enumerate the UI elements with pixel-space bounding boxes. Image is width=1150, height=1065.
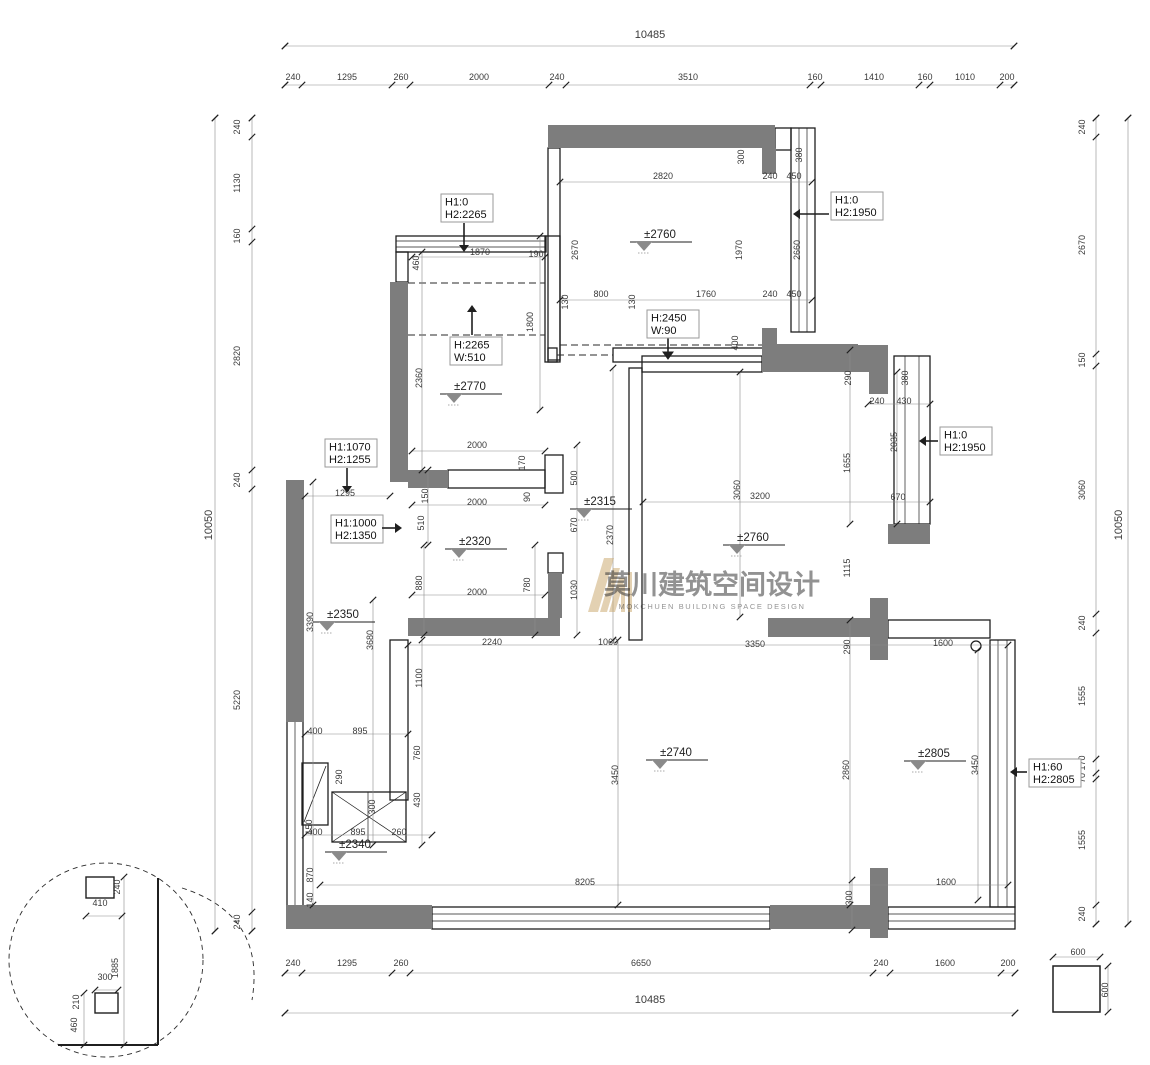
labels-layer: 2401295260200024035101601410160101020024… bbox=[69, 29, 1125, 1033]
dim-label: 2660 bbox=[792, 240, 802, 260]
callout-arrow bbox=[395, 523, 402, 533]
dim-label: 1760 bbox=[696, 289, 716, 299]
callout-arrow bbox=[467, 305, 477, 312]
dim-label: 895 bbox=[352, 726, 367, 736]
dim-label: 2860 bbox=[841, 760, 851, 780]
dim-label: 290 bbox=[843, 370, 853, 385]
dim-label: 240 bbox=[112, 879, 122, 894]
dim-label: 240 bbox=[1077, 906, 1087, 921]
dim-label: 130 bbox=[627, 294, 637, 309]
dim-label: 160 bbox=[232, 228, 242, 243]
dim-label: 500 bbox=[569, 470, 579, 485]
dim-label: 150 bbox=[420, 488, 430, 503]
dim-label: 2820 bbox=[232, 346, 242, 366]
callout-text: H2:1950 bbox=[944, 442, 986, 454]
dim-label: 170 bbox=[517, 455, 527, 470]
callout-text: H1:0 bbox=[944, 430, 967, 442]
watermark-logo: 莫川建筑空间设计 MOKCHUEN BUILDING SPACE DESIGN bbox=[588, 558, 820, 612]
dim-label: 2360 bbox=[414, 368, 424, 388]
dim-label: 160 bbox=[917, 72, 932, 82]
dim-label: 1030 bbox=[569, 580, 579, 600]
dim-label: 2000 bbox=[467, 440, 487, 450]
dim-label: 240 bbox=[232, 914, 242, 929]
dim-label: 240 bbox=[873, 958, 888, 968]
dim-label: 510 bbox=[416, 515, 426, 530]
dim-label: 300 bbox=[97, 972, 112, 982]
wall-circle-symbol bbox=[971, 641, 981, 651]
dim-label: 200 bbox=[1000, 958, 1015, 968]
dim-label: 1115 bbox=[842, 559, 852, 578]
callout-text: H2:2265 bbox=[445, 209, 487, 221]
dim-label: 600 bbox=[1100, 982, 1110, 997]
dim-label: 140 bbox=[305, 892, 315, 907]
callout-text: H:2265 bbox=[454, 340, 489, 352]
dim-label: 300 bbox=[736, 149, 746, 164]
dim-label: 3450 bbox=[610, 765, 620, 785]
dim-label: 870 bbox=[305, 867, 315, 882]
floor-plan-page: 莫川建筑空间设计 MOKCHUEN BUILDING SPACE DESIGN … bbox=[0, 0, 1150, 1065]
dim-label: 1295 bbox=[337, 72, 357, 82]
dim-label: 410 bbox=[92, 898, 107, 908]
window-bottom-right bbox=[888, 907, 1015, 929]
dim-label: 1655 bbox=[842, 453, 852, 473]
callout-text: W:510 bbox=[454, 352, 486, 364]
dim-label: 430 bbox=[896, 396, 911, 406]
callout-arrow bbox=[793, 209, 800, 219]
dim-label: 1555 bbox=[1077, 830, 1087, 850]
floor-plan-canvas: 莫川建筑空间设计 MOKCHUEN BUILDING SPACE DESIGN … bbox=[0, 0, 1150, 1065]
callout-text: H2:1350 bbox=[335, 530, 377, 542]
dim-label: 240 bbox=[869, 396, 884, 406]
door-leaf bbox=[302, 763, 328, 825]
callout-text: H2:2805 bbox=[1033, 774, 1075, 786]
dim-label: 3680 bbox=[365, 630, 375, 650]
dashed-lines-layer bbox=[9, 283, 762, 1057]
dim-label: 1600 bbox=[935, 958, 955, 968]
dim-label: 240 bbox=[232, 472, 242, 487]
dim-label: 1555 bbox=[1077, 686, 1087, 706]
total-dim-label: 10050 bbox=[203, 510, 215, 541]
callout-text: H1:0 bbox=[445, 197, 468, 209]
dim-label: 2035 bbox=[889, 432, 899, 452]
dim-label: 2670 bbox=[1077, 235, 1087, 255]
callout-arrow bbox=[919, 436, 926, 446]
dim-label: 6650 bbox=[631, 958, 651, 968]
dim-label: 670 bbox=[569, 517, 579, 532]
dim-label: 1060 bbox=[598, 637, 618, 647]
dim-label: 3060 bbox=[732, 480, 742, 500]
dim-label: 300 bbox=[844, 890, 854, 905]
dim-label: 8205 bbox=[575, 877, 595, 887]
level-marker-label: ±2320 bbox=[459, 536, 491, 548]
dim-label: 1870 bbox=[470, 247, 490, 257]
level-marker-label: ±2760 bbox=[644, 229, 676, 241]
dim-label: 1970 bbox=[734, 240, 744, 260]
dim-label: 2000 bbox=[469, 72, 489, 82]
level-marker-label: ±2340 bbox=[339, 839, 371, 851]
dim-label: 400 bbox=[307, 726, 322, 736]
dim-label: 2670 bbox=[570, 240, 580, 260]
level-marker-label: ±2770 bbox=[454, 381, 486, 393]
dim-label: 895 bbox=[350, 827, 365, 837]
dim-label: 780 bbox=[522, 577, 532, 592]
dim-label: 190 bbox=[528, 249, 543, 259]
dim-label: 3510 bbox=[678, 72, 698, 82]
dim-label: 400 bbox=[730, 335, 740, 350]
dim-label: 800 bbox=[593, 289, 608, 299]
dim-label: 260 bbox=[393, 72, 408, 82]
dim-label: 5220 bbox=[232, 690, 242, 710]
dim-label: 240 bbox=[285, 958, 300, 968]
total-dim-label: 10485 bbox=[635, 994, 666, 1006]
dim-label: 3060 bbox=[1077, 480, 1087, 500]
dim-label: 2000 bbox=[467, 497, 487, 507]
dim-label: 2240 bbox=[482, 637, 502, 647]
dim-label: 3450 bbox=[970, 755, 980, 775]
callout-text: H:2450 bbox=[651, 313, 686, 325]
dim-label: 430 bbox=[412, 792, 422, 807]
dim-label: 380 bbox=[900, 370, 910, 385]
dim-label: 290 bbox=[842, 639, 852, 654]
dim-label: 300 bbox=[367, 799, 377, 814]
total-dim-label: 10485 bbox=[635, 29, 666, 41]
callout-boxes-layer: H1:0H2:2265H1:0H2:1950H:2265W:510H:2450W… bbox=[325, 192, 1081, 787]
window-left-balcony bbox=[287, 720, 303, 907]
dim-label: 240 bbox=[285, 72, 300, 82]
dim-label: 400 bbox=[307, 827, 322, 837]
dim-label: 240 bbox=[232, 119, 242, 134]
level-marker-label: ±2315 bbox=[584, 496, 616, 508]
watermark-cn-text: 莫川建筑空间设计 bbox=[604, 569, 820, 600]
dim-label: 450 bbox=[786, 289, 801, 299]
dim-label: 1600 bbox=[936, 877, 956, 887]
level-marker-label: ±2740 bbox=[660, 747, 692, 759]
dim-label: 1295 bbox=[337, 958, 357, 968]
callout-text: H1:60 bbox=[1033, 762, 1062, 774]
dim-label: 2820 bbox=[653, 171, 673, 181]
dim-label: 2000 bbox=[467, 587, 487, 597]
callout-arrow bbox=[459, 245, 469, 252]
total-dim-label: 10050 bbox=[1113, 510, 1125, 541]
dim-label: 260 bbox=[393, 958, 408, 968]
dim-label: 240 bbox=[1077, 615, 1087, 630]
callout-arrow bbox=[1010, 767, 1017, 777]
dim-label: 670 bbox=[890, 492, 905, 502]
window-bottom-middle bbox=[432, 907, 770, 929]
dim-label: 200 bbox=[999, 72, 1014, 82]
dim-label: 240 bbox=[762, 171, 777, 181]
dim-label: 90 bbox=[522, 492, 532, 502]
callout-text: H2:1950 bbox=[835, 207, 877, 219]
dim-label: 760 bbox=[412, 745, 422, 760]
level-markers-layer: ±2760±2770±2315±2320±2760±2350±2740±2805… bbox=[313, 229, 966, 863]
dim-label: 450 bbox=[786, 171, 801, 181]
callout-text: W:90 bbox=[651, 325, 676, 337]
dim-label: 1130 bbox=[232, 173, 242, 192]
dim-label: 380 bbox=[794, 147, 804, 162]
window-living-right bbox=[990, 640, 1015, 907]
dim-label: 600 bbox=[1070, 947, 1085, 957]
dim-label: 460 bbox=[411, 255, 421, 270]
dim-label: 3350 bbox=[745, 639, 765, 649]
dim-label: 260 bbox=[391, 827, 406, 837]
dim-label: 880 bbox=[414, 575, 424, 590]
watermark-en-text: MOKCHUEN BUILDING SPACE DESIGN bbox=[618, 602, 805, 611]
callout-text: H1:1000 bbox=[335, 518, 377, 530]
dim-label: 210 bbox=[71, 994, 81, 1009]
dim-label: 150 bbox=[1077, 352, 1087, 367]
detail-square bbox=[1053, 966, 1100, 1012]
dim-label: 240 bbox=[1077, 119, 1087, 134]
dim-label: 240 bbox=[549, 72, 564, 82]
dim-label: 1100 bbox=[414, 668, 424, 687]
dim-label: 130 bbox=[560, 294, 570, 309]
level-marker-label: ±2805 bbox=[918, 748, 950, 760]
callout-text: H2:1255 bbox=[329, 454, 371, 466]
dim-label: 3200 bbox=[750, 491, 770, 501]
dim-label: 1410 bbox=[864, 72, 884, 82]
callout-text: H1:1070 bbox=[329, 442, 371, 454]
dim-label: 460 bbox=[69, 1017, 79, 1032]
callout-text: H1:0 bbox=[835, 195, 858, 207]
dim-label: 1010 bbox=[955, 72, 975, 82]
dim-label: 160 bbox=[807, 72, 822, 82]
dim-label: 1600 bbox=[933, 638, 953, 648]
dim-label: 240 bbox=[762, 289, 777, 299]
level-marker-label: ±2760 bbox=[737, 532, 769, 544]
dim-label: 1800 bbox=[525, 312, 535, 332]
dim-label: 290 bbox=[334, 769, 344, 784]
level-marker-label: ±2350 bbox=[327, 609, 359, 621]
dim-label: 2370 bbox=[605, 525, 615, 545]
